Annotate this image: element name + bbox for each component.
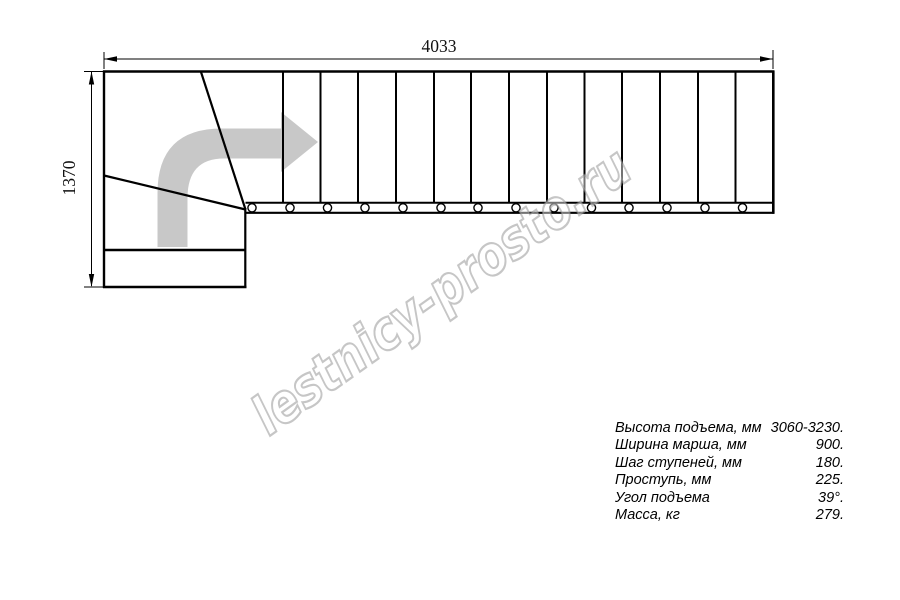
- spec-value: 279.: [816, 507, 844, 524]
- watermark-text: lestnicy-prosto.ru: [240, 135, 643, 448]
- spec-value: 900.: [816, 437, 844, 454]
- width-dimension-label: 1370: [59, 160, 79, 195]
- baluster-circle: [286, 204, 294, 212]
- spec-row: Высота подъема, мм 3060-3230.: [615, 420, 844, 437]
- dim-arrow-right: [760, 56, 773, 61]
- spec-row: Ширина марша, мм 900.: [615, 437, 844, 454]
- spec-label: Масса, кг: [615, 507, 680, 524]
- baluster-circle: [625, 204, 633, 212]
- spec-row: Проступь, мм 225.: [615, 472, 844, 489]
- baluster-circle: [437, 204, 445, 212]
- baluster-circle: [663, 204, 671, 212]
- spec-label: Высота подъема, мм: [615, 420, 762, 437]
- baluster-circle: [701, 204, 709, 212]
- dim-arrow-down: [89, 274, 94, 287]
- length-dimension: 4033: [104, 36, 773, 69]
- spec-value: 39°.: [818, 490, 844, 507]
- baluster-circle: [361, 204, 369, 212]
- dim-arrow-up: [89, 72, 94, 85]
- spec-value: 3060-3230.: [771, 420, 844, 437]
- spec-label: Проступь, мм: [615, 472, 711, 489]
- spec-value: 225.: [816, 472, 844, 489]
- length-dimension-label: 4033: [422, 36, 457, 56]
- stair-drawing-page: 4033 1370 lestnicy-prosto.ru Высота подъ…: [0, 0, 900, 600]
- baluster-circle: [399, 204, 407, 212]
- baluster-circle: [474, 204, 482, 212]
- spec-label: Шаг ступеней, мм: [615, 455, 742, 472]
- baluster-markers: [248, 204, 747, 212]
- spec-label: Угол подъема: [615, 490, 710, 507]
- spec-row: Масса, кг 279.: [615, 507, 844, 524]
- direction-arrow-icon: [158, 112, 319, 247]
- tread-lines: [283, 72, 736, 202]
- baluster-circle: [738, 204, 746, 212]
- baluster-circle: [323, 204, 331, 212]
- spec-label: Ширина марша, мм: [615, 437, 747, 454]
- spec-row: Угол подъема 39°.: [615, 490, 844, 507]
- dim-arrow-left: [104, 56, 117, 61]
- baluster-circle: [248, 204, 256, 212]
- spec-row: Шаг ступеней, мм 180.: [615, 455, 844, 472]
- spec-value: 180.: [816, 455, 844, 472]
- stair-spec-table: Высота подъема, мм 3060-3230. Ширина мар…: [615, 420, 844, 524]
- width-dimension: 1370: [59, 72, 103, 288]
